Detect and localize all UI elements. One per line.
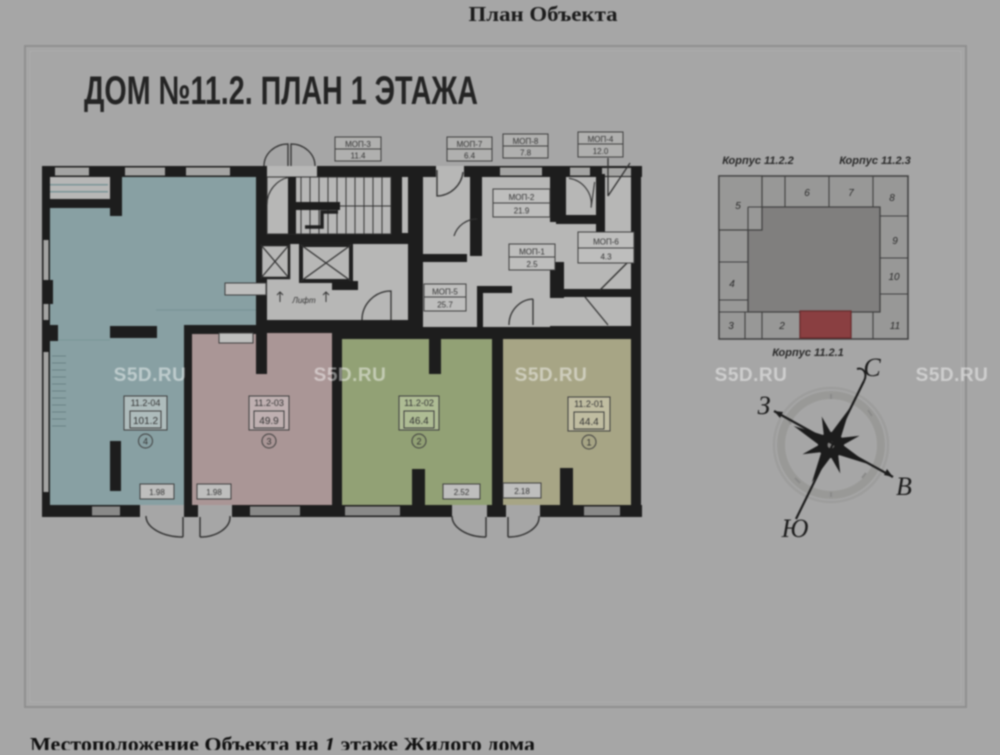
svg-text:МОП-2: МОП-2 <box>509 193 535 202</box>
svg-text:ДОМ №11.2. ПЛАН 1 ЭТАЖА: ДОМ №11.2. ПЛАН 1 ЭТАЖА <box>84 69 478 113</box>
svg-text:МОП-7: МОП-7 <box>457 140 483 149</box>
svg-text:Ю: Ю <box>781 514 809 543</box>
svg-text:МОП-6: МОП-6 <box>593 238 619 247</box>
svg-text:9: 9 <box>892 236 898 247</box>
svg-text:5: 5 <box>735 201 741 212</box>
svg-text:1: 1 <box>586 438 591 448</box>
svg-text:6: 6 <box>804 188 810 199</box>
svg-text:11.2-01: 11.2-01 <box>574 399 604 409</box>
svg-text:46.4: 46.4 <box>409 416 429 427</box>
svg-text:S5D.RU: S5D.RU <box>314 365 387 386</box>
svg-text:6.4: 6.4 <box>464 152 476 161</box>
svg-text:8: 8 <box>889 193 895 204</box>
svg-text:7: 7 <box>848 188 854 199</box>
svg-text:2.5: 2.5 <box>526 260 538 269</box>
svg-text:1.98: 1.98 <box>206 488 222 497</box>
svg-text:Местоположение Объекта на 1 эт: Местоположение Объекта на 1 этаже Жилого… <box>30 734 535 750</box>
svg-text:МОП-4: МОП-4 <box>588 135 614 144</box>
svg-text:В: В <box>896 472 912 501</box>
svg-text:4: 4 <box>729 279 735 290</box>
svg-text:S5D.RU: S5D.RU <box>114 365 187 386</box>
svg-text:2.18: 2.18 <box>514 487 530 496</box>
svg-text:49.9: 49.9 <box>259 416 279 427</box>
svg-text:Корпус 11.2.3: Корпус 11.2.3 <box>839 155 911 167</box>
svg-text:Корпус 11.2.1: Корпус 11.2.1 <box>772 347 844 359</box>
svg-text:2.52: 2.52 <box>454 488 470 497</box>
svg-text:11.2-04: 11.2-04 <box>131 398 161 408</box>
svg-text:2: 2 <box>778 321 785 332</box>
svg-text:11.2-03: 11.2-03 <box>254 398 284 408</box>
svg-text:З: З <box>758 391 771 420</box>
svg-text:S5D.RU: S5D.RU <box>916 365 989 386</box>
svg-text:Лифт: Лифт <box>291 296 316 305</box>
svg-text:S5D.RU: S5D.RU <box>515 365 588 386</box>
svg-text:3: 3 <box>266 437 271 447</box>
svg-text:Корпус 11.2.2: Корпус 11.2.2 <box>722 155 794 167</box>
svg-text:4: 4 <box>143 437 148 447</box>
svg-text:МОП-3: МОП-3 <box>345 140 371 149</box>
svg-text:3: 3 <box>728 321 734 332</box>
svg-text:10: 10 <box>888 272 900 283</box>
svg-text:11.4: 11.4 <box>351 152 367 161</box>
svg-text:21.9: 21.9 <box>514 207 530 216</box>
svg-text:S5D.RU: S5D.RU <box>715 365 788 386</box>
svg-text:План Объекта: План Объекта <box>469 2 619 26</box>
svg-text:1.98: 1.98 <box>149 488 165 497</box>
svg-text:С: С <box>863 353 881 382</box>
svg-text:МОП-1: МОП-1 <box>519 248 545 257</box>
svg-text:101.2: 101.2 <box>133 416 158 427</box>
svg-text:МОП-5: МОП-5 <box>432 288 458 297</box>
svg-text:2: 2 <box>416 437 421 447</box>
svg-text:МОП-8: МОП-8 <box>513 137 539 146</box>
svg-text:11: 11 <box>890 321 900 332</box>
svg-text:4.3: 4.3 <box>600 253 612 262</box>
svg-text:11.2-02: 11.2-02 <box>404 398 434 408</box>
svg-text:12.0: 12.0 <box>593 147 609 156</box>
svg-text:44.4: 44.4 <box>579 417 599 428</box>
svg-text:25.7: 25.7 <box>437 301 453 310</box>
svg-text:7.8: 7.8 <box>520 149 532 158</box>
